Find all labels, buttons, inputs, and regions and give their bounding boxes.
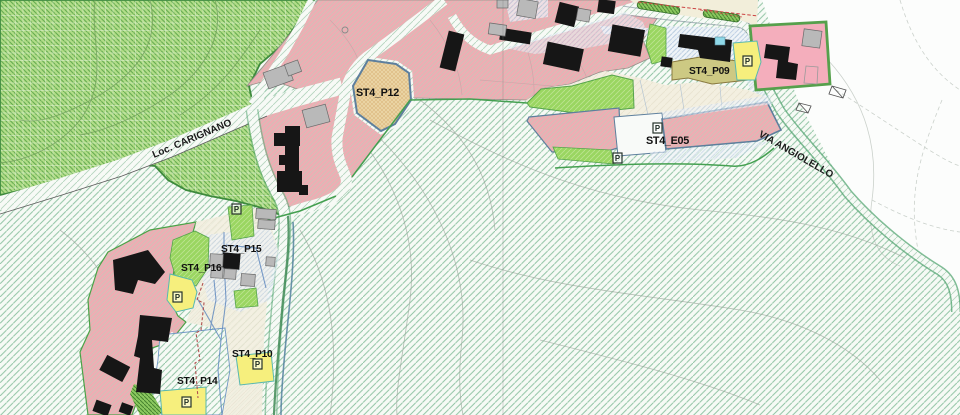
svg-text:P: P <box>234 205 239 214</box>
svg-text:ST4_P15: ST4_P15 <box>221 244 262 255</box>
svg-text:ST4_P10: ST4_P10 <box>232 349 273 360</box>
svg-text:ST4_P09: ST4_P09 <box>689 66 730 77</box>
svg-text:P: P <box>184 398 189 407</box>
svg-text:P: P <box>255 360 260 369</box>
svg-text:P: P <box>175 293 180 302</box>
svg-text:ST4_P12: ST4_P12 <box>356 87 399 99</box>
svg-text:ST4_E05: ST4_E05 <box>646 135 689 147</box>
svg-text:ST4_P16: ST4_P16 <box>181 263 222 274</box>
svg-text:P: P <box>615 154 620 163</box>
svg-text:ST4_P14: ST4_P14 <box>177 376 218 387</box>
svg-text:P: P <box>745 57 750 66</box>
svg-text:P: P <box>655 124 660 133</box>
